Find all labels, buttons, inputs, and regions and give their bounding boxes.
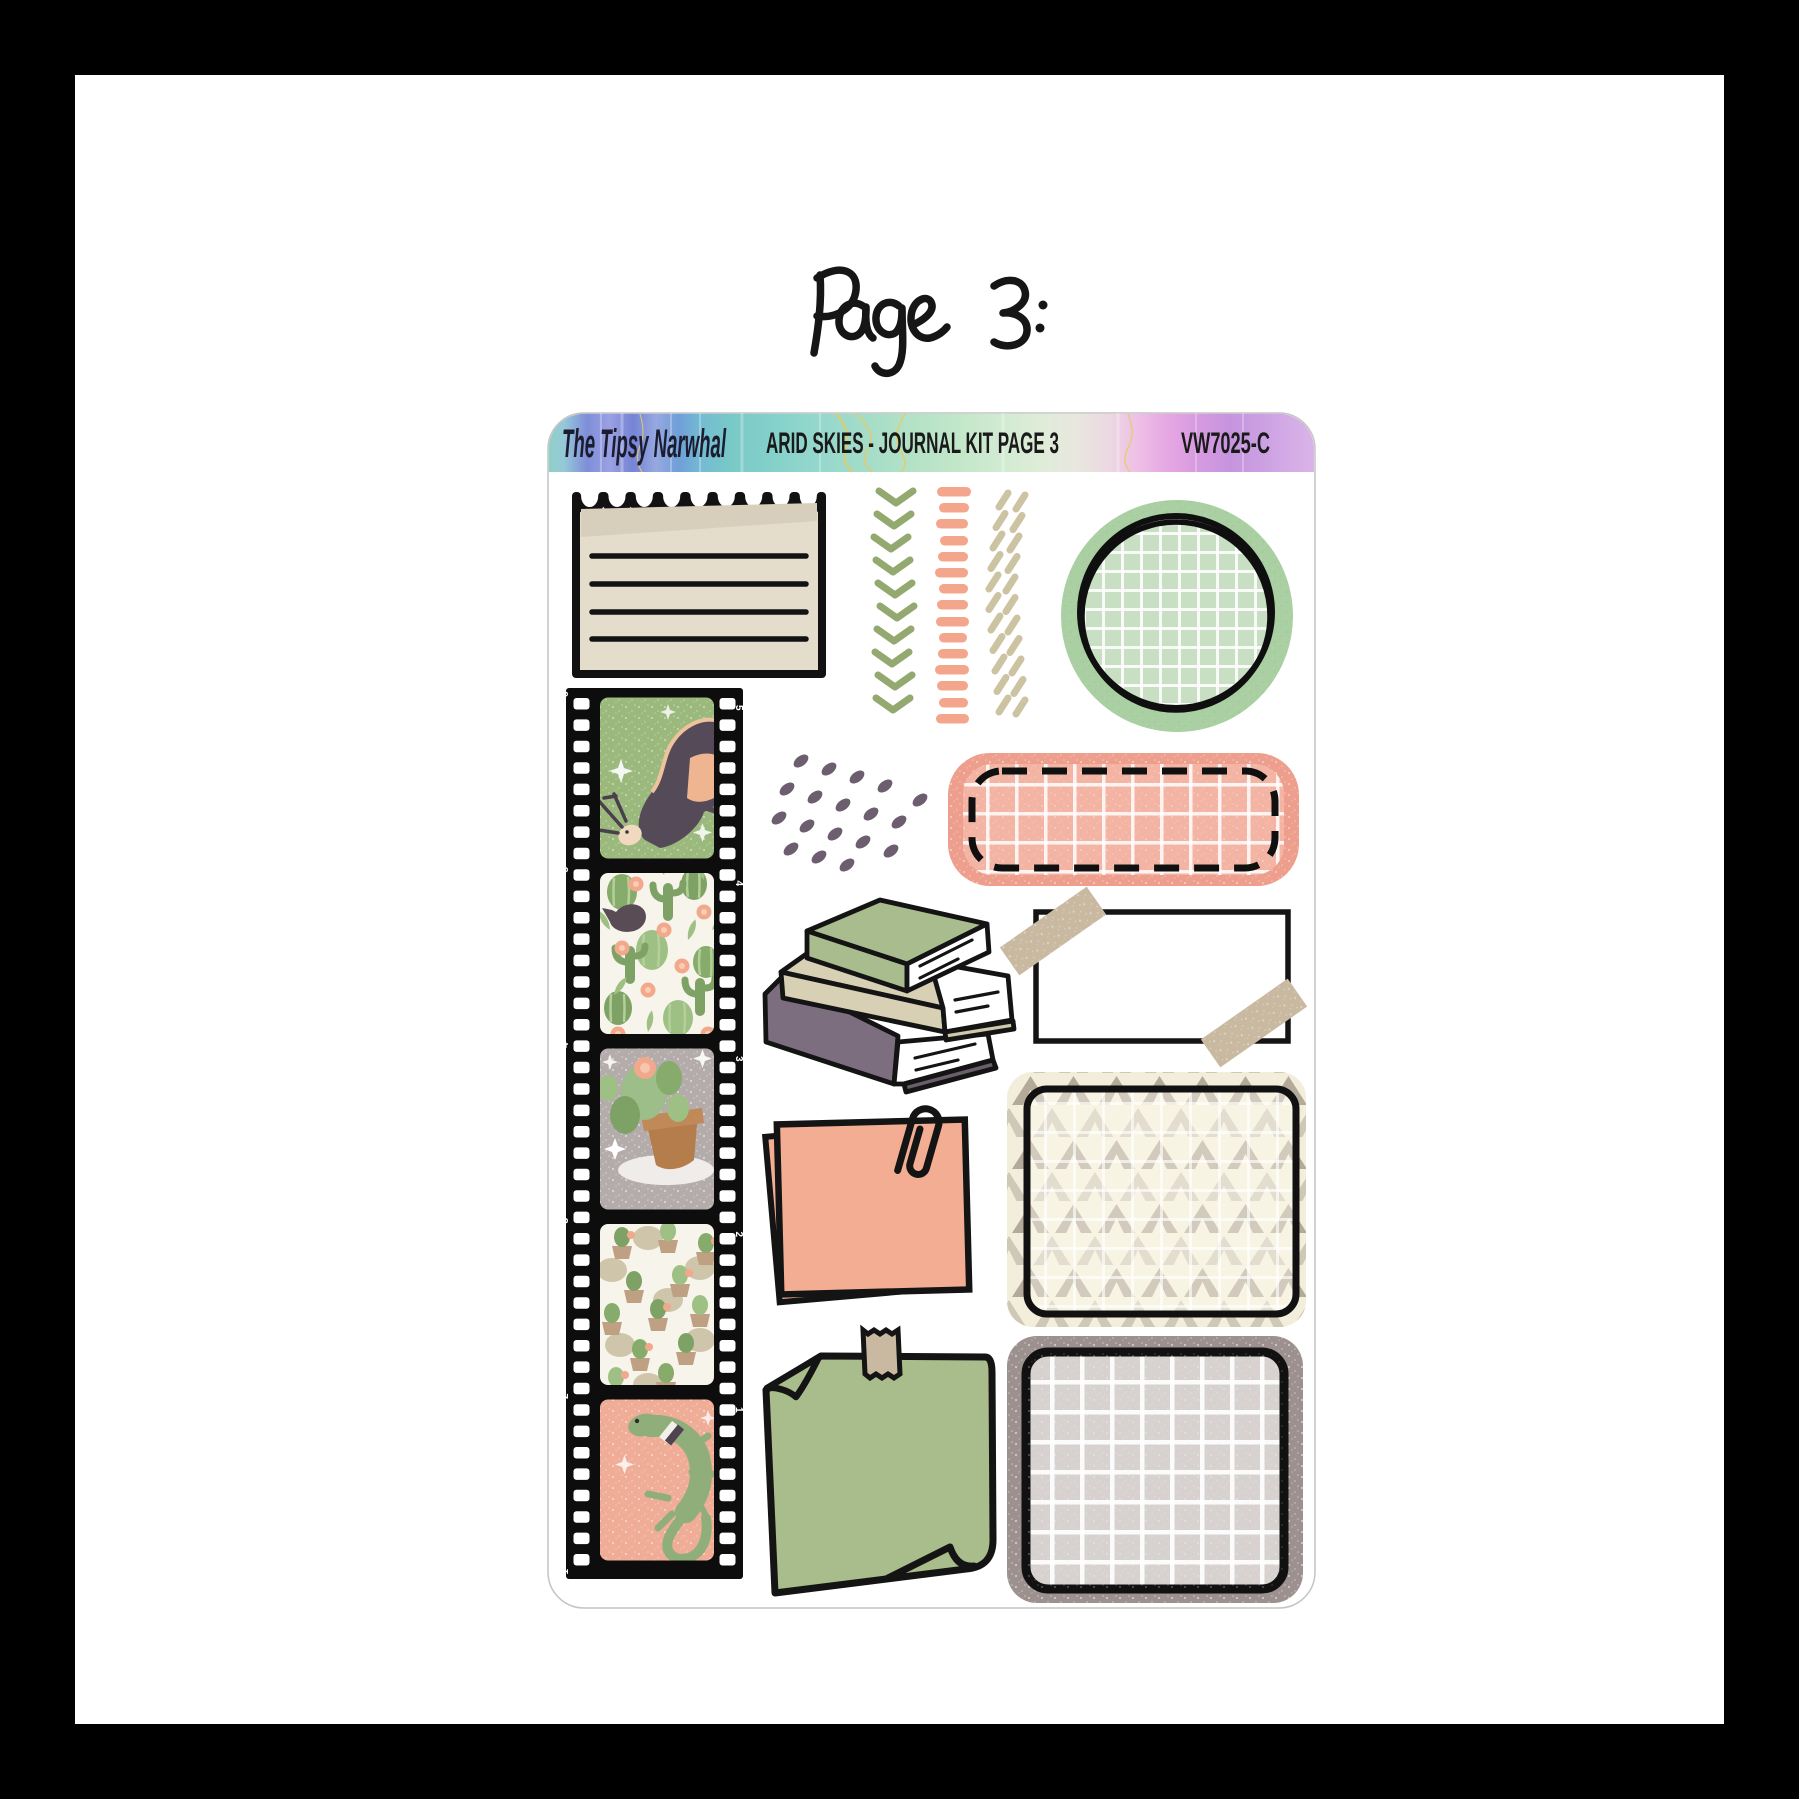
svg-text:4: 4 xyxy=(733,881,744,887)
svg-text:2: 2 xyxy=(560,1393,571,1399)
svg-text:1: 1 xyxy=(560,1569,571,1575)
svg-text:3: 3 xyxy=(733,1056,744,1062)
svg-text:The Tipsy Narwhal: The Tipsy Narwhal xyxy=(562,422,726,466)
svg-text:VW7025-C: VW7025-C xyxy=(1181,427,1270,460)
svg-text:3: 3 xyxy=(560,1218,571,1224)
svg-text:4: 4 xyxy=(560,1042,571,1048)
svg-text:6: 6 xyxy=(560,691,571,697)
svg-text:5: 5 xyxy=(733,705,744,711)
svg-text:1: 1 xyxy=(733,1407,744,1413)
svg-text:2: 2 xyxy=(733,1232,744,1238)
svg-text:ARID SKIES - JOURNAL KIT PAGE: ARID SKIES - JOURNAL KIT PAGE 3 xyxy=(766,427,1059,460)
svg-text:5: 5 xyxy=(560,867,571,873)
